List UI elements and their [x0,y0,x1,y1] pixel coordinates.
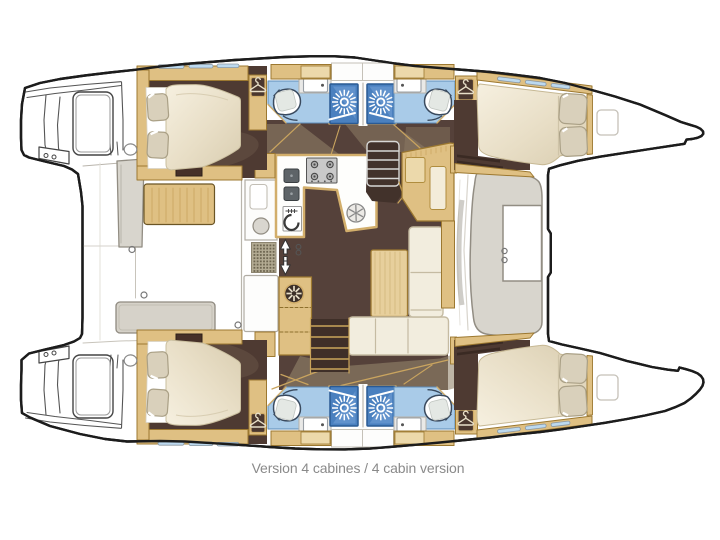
svg-text:Version 4 cabines / 4 cabin ve: Version 4 cabines / 4 cabin version [252,460,465,476]
